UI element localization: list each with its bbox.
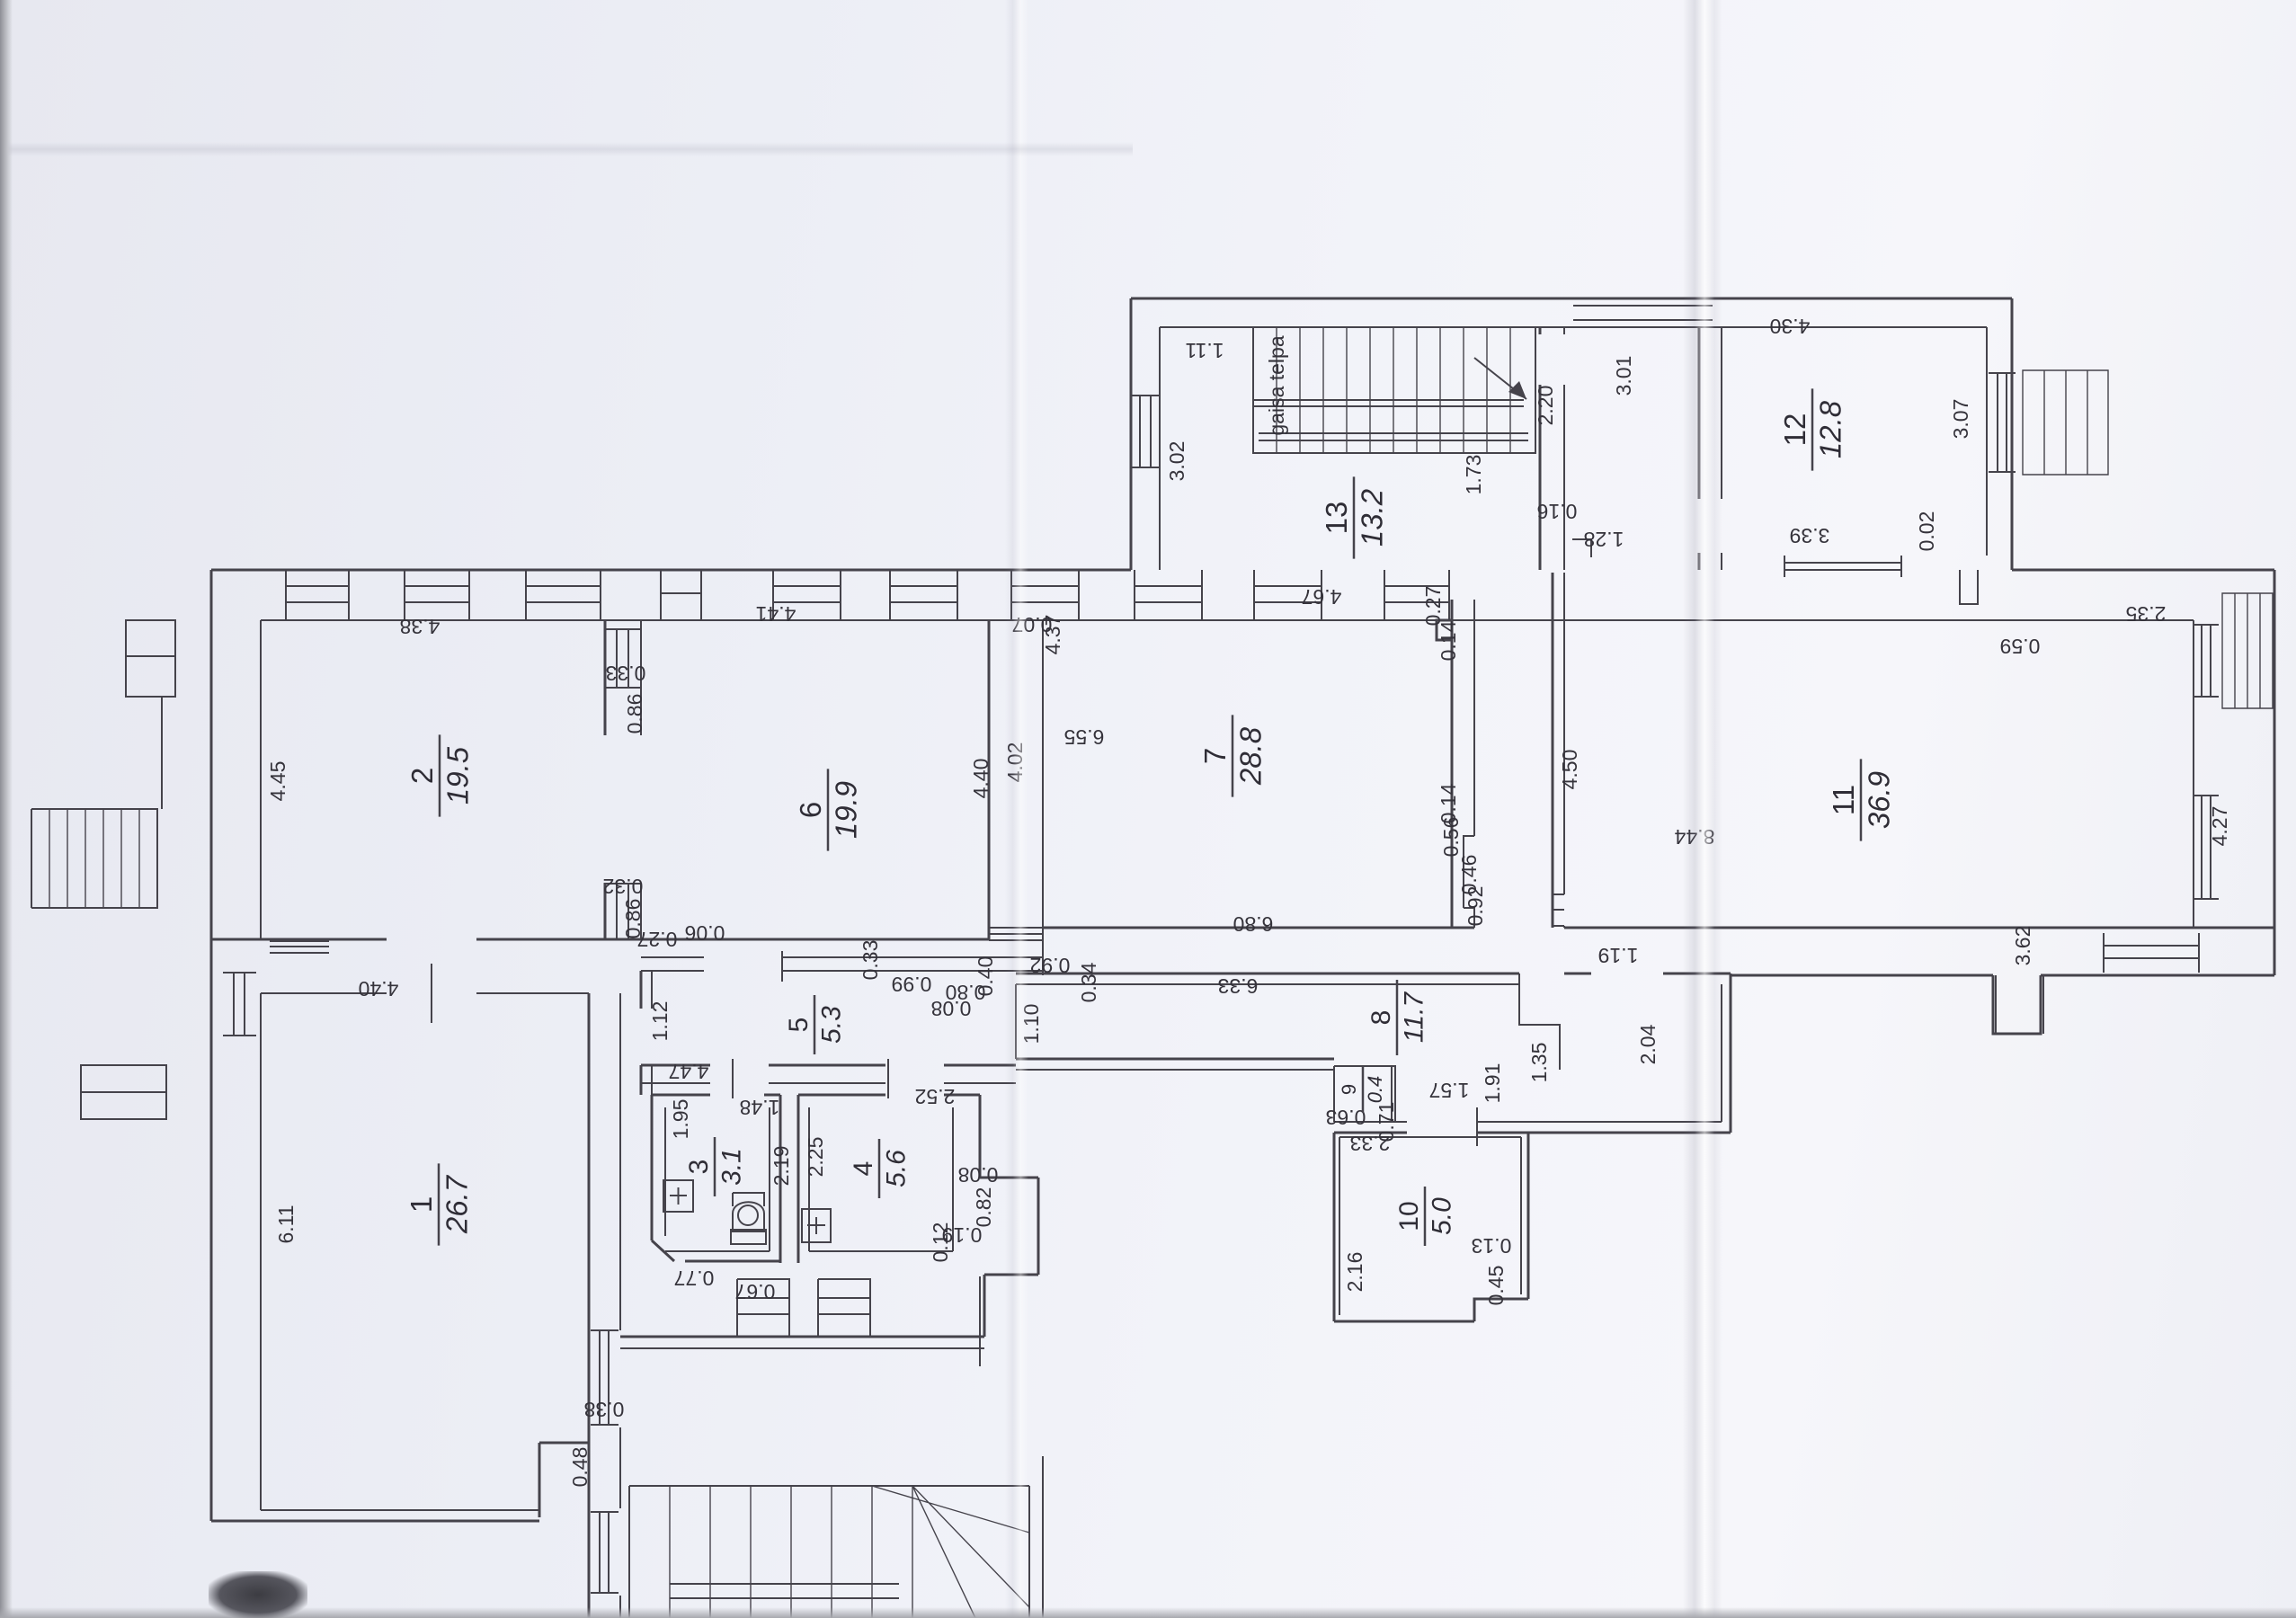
room-number: 10	[1394, 1201, 1424, 1231]
dimension-value: 0.59	[2000, 635, 2041, 658]
dimension-label: 1.12	[648, 1001, 672, 1042]
dimension-value: 0.92	[1030, 954, 1071, 977]
room-area: 5.3	[817, 1006, 847, 1044]
dimension-label: 0.56	[1439, 817, 1463, 858]
dimension-label: 8.44	[1674, 825, 1714, 849]
facade-windows	[286, 556, 1901, 620]
room-area: 19.9	[829, 781, 862, 839]
dimension-value: 0.27	[637, 928, 678, 951]
dimension-label: 0.27	[1421, 586, 1445, 627]
dimension-label: 0.92	[1464, 886, 1487, 927]
dimension-label: 0.92	[1030, 954, 1071, 977]
dimension-label: 4.50	[1558, 750, 1581, 790]
room-area: 13.2	[1355, 489, 1388, 547]
dimension-value: 0.40	[974, 956, 997, 997]
dimension-value: 6.80	[1233, 912, 1274, 936]
dimension-value: 0.77	[674, 1267, 715, 1290]
dimension-value: 4.45	[266, 761, 289, 802]
room-number: 8	[1366, 1010, 1396, 1026]
dimension-value: 3.39	[1790, 524, 1830, 547]
dimension-value: 2.19	[770, 1146, 793, 1187]
dimension-value: 0.33	[859, 940, 882, 981]
exterior-stair-hatch-12	[2023, 370, 2108, 475]
dimension-label: 2.16	[1343, 1252, 1366, 1293]
dimension-value: 4.37	[1041, 615, 1064, 655]
sink-icon-room4	[802, 1209, 831, 1242]
dimension-label: 4.40	[969, 759, 992, 799]
dimension-value: 4.47	[669, 1060, 709, 1083]
dimension-label: 2.19	[770, 1146, 793, 1187]
entrance-steps-left	[31, 620, 175, 1119]
dimension-label: 4.27	[2208, 806, 2231, 847]
room-number: 4	[849, 1161, 878, 1177]
dimension-value: 2.20	[1534, 386, 1557, 426]
dimension-value: 4.27	[2208, 806, 2231, 847]
dimension-label: 0.06	[685, 921, 725, 945]
room-label-7: 728.8	[1198, 715, 1267, 796]
dimension-value: 0.48	[568, 1447, 592, 1488]
dimension-value: 1.35	[1527, 1043, 1551, 1083]
dimension-label: 0.16	[1537, 500, 1578, 523]
dimension-value: 4.30	[1770, 315, 1811, 338]
dimension-value: 4.40	[969, 759, 992, 799]
dimension-value: 3.07	[1949, 399, 1972, 440]
dimension-value: 0.99	[892, 973, 932, 996]
upper-staircase-room13	[1253, 327, 1535, 453]
dimension-label: 0.45	[1484, 1266, 1508, 1306]
room-label-1: 126.7	[405, 1163, 473, 1245]
dimension-value: 8.44	[1674, 825, 1714, 849]
room-number: 3	[684, 1160, 714, 1175]
dimension-value: 0.06	[685, 921, 725, 945]
dimension-label: 4.47	[669, 1060, 709, 1083]
page-edge-shadow	[0, 0, 13, 1618]
dimension-value: 0.27	[1421, 586, 1445, 627]
room-label-2: 219.5	[405, 734, 474, 816]
dimension-value: 1.19	[1598, 944, 1639, 967]
dimension-value: 1.12	[648, 1001, 672, 1042]
dimension-value: 2.25	[804, 1137, 827, 1178]
dimension-value: 0.38	[584, 1398, 625, 1421]
dimension-label: 3.62	[2011, 926, 2034, 966]
room-number: 1	[405, 1196, 438, 1213]
dimension-label: 0.12	[929, 1222, 952, 1263]
dimension-label: 1.10	[1019, 1004, 1043, 1045]
room-number: 2	[405, 768, 439, 784]
dimension-value: 0.92	[1464, 886, 1487, 927]
dimension-value: 2.35	[2126, 602, 2167, 626]
room-number: 5	[784, 1018, 814, 1033]
dimension-value: 1.11	[1185, 339, 1224, 362]
dimension-value: 0.34	[1077, 962, 1100, 1002]
dimension-label: 1.28	[1584, 528, 1624, 551]
dimension-label: 6.55	[1064, 725, 1105, 749]
dimension-value: 6.33	[1218, 974, 1259, 998]
dimension-label: 1.35	[1527, 1043, 1551, 1083]
dimension-value: 3.62	[2011, 926, 2034, 966]
dimension-label: 1.48	[740, 1096, 780, 1119]
dimension-value: 4.67	[1302, 585, 1342, 609]
dimension-label: 4.67	[1302, 585, 1342, 609]
room-area: 28.8	[1233, 726, 1267, 786]
exterior-walls	[211, 298, 2274, 1618]
interior-walls	[211, 573, 2274, 1366]
toilet-icon	[731, 1193, 766, 1244]
dimension-label: 0.67	[735, 1280, 776, 1303]
dimension-label: 2.04	[1636, 1024, 1660, 1064]
dimension-label: 1.57	[1429, 1079, 1470, 1102]
room-number: 7	[1198, 748, 1232, 764]
room-number: 12	[1778, 413, 1811, 447]
room-area: 5.0	[1428, 1197, 1457, 1235]
dimension-value: 4.02	[1003, 742, 1027, 783]
dimension-labels: 1.113.022.201.734.673.010.161.284.303.07…	[266, 315, 2231, 1487]
dimension-value: 4.41	[756, 602, 796, 626]
dimension-label: 0.86	[623, 694, 646, 734]
dimension-value: 2.52	[915, 1085, 956, 1108]
dimension-value: 0.08	[958, 1163, 999, 1187]
dimension-label: 4.38	[400, 615, 441, 638]
main-staircase	[629, 1456, 1043, 1618]
room-area: 0.4	[1364, 1076, 1386, 1104]
dimension-value: 0.67	[735, 1280, 776, 1303]
room-label-11: 1136.9	[1827, 759, 1895, 840]
dimension-value: 4.38	[400, 615, 441, 638]
dimension-value: 2.04	[1636, 1024, 1660, 1064]
room-labels: 126.7219.533.145.655.3619.9728.8811.790.…	[405, 335, 1895, 1246]
dimension-label: 3.02	[1165, 441, 1188, 482]
dimension-value: 0.32	[603, 875, 644, 898]
room-label-12: 1212.8	[1778, 388, 1847, 470]
dimension-value: 1.95	[669, 1099, 692, 1140]
dimension-label: 0.02	[1915, 511, 1938, 552]
dimension-value: 0.13	[1472, 1234, 1512, 1258]
dimension-label: 0.33	[859, 940, 882, 981]
dimension-label: 0.32	[603, 875, 644, 898]
air-space-text: gaisa telpa	[1265, 335, 1288, 435]
dimension-label: 3.01	[1612, 356, 1635, 396]
dimension-label: 0.40	[974, 956, 997, 997]
dimension-value: 6.55	[1064, 725, 1105, 749]
dimension-label: 0.34	[1077, 962, 1100, 1002]
floor-plan-drawing: 1.113.022.201.734.673.010.161.284.303.07…	[0, 0, 2296, 1618]
dimension-value: 3.02	[1165, 441, 1188, 482]
dimension-label: 4.02	[1003, 742, 1027, 783]
dimension-label: 6.33	[1218, 974, 1259, 998]
dimension-value: 4.40	[359, 977, 399, 1000]
dimension-label: 3.07	[1949, 399, 1972, 440]
dimension-value: 0.02	[1915, 511, 1938, 552]
room-area: 11.7	[1400, 991, 1429, 1043]
dimension-label: 0.38	[584, 1398, 625, 1421]
room-label-5: 55.3	[784, 995, 847, 1054]
room-label-6: 619.9	[794, 769, 862, 850]
dimension-label: 0.77	[674, 1267, 715, 1290]
dimension-label: 2.35	[2126, 602, 2167, 626]
dimension-value: 1.10	[1019, 1004, 1043, 1045]
dimension-value: 2.33	[1350, 1132, 1391, 1155]
dimension-label: 1.11	[1185, 339, 1224, 362]
dimension-label: 1.19	[1598, 944, 1639, 967]
dimension-label: 4.45	[266, 761, 289, 802]
dimension-value: 0.33	[606, 662, 646, 685]
dimension-label: 2.33	[1350, 1132, 1391, 1155]
sink-icon-room3	[663, 1180, 693, 1212]
dimension-label: 0.48	[568, 1447, 592, 1488]
room-number: 6	[794, 802, 827, 818]
room-label-8: 811.7	[1366, 980, 1429, 1055]
room-area: 26.7	[440, 1174, 473, 1234]
dimension-label: 2.20	[1534, 386, 1557, 426]
dimension-label: 2.25	[804, 1137, 827, 1178]
air-space-label: gaisa telpa	[1265, 335, 1288, 435]
scanner-shadow-blob	[209, 1571, 307, 1618]
dimension-value: 0.14	[1437, 620, 1460, 661]
scanned-floor-plan-page: 1.113.022.201.734.673.010.161.284.303.07…	[0, 0, 2296, 1618]
dimension-value: 3.01	[1612, 356, 1635, 396]
dimension-value: 1.28	[1584, 528, 1624, 551]
dimension-label: 1.95	[669, 1099, 692, 1140]
dimension-label: 4.40	[359, 977, 399, 1000]
room-label-13: 1313.2	[1320, 476, 1388, 558]
dimension-label: 4.41	[756, 602, 796, 626]
dimension-value: 0.12	[929, 1222, 952, 1263]
dimension-value: 0.86	[623, 694, 646, 734]
dimension-label: 0.99	[892, 973, 932, 996]
dimension-label: 0.59	[2000, 635, 2041, 658]
dimension-value: 1.57	[1429, 1079, 1470, 1102]
room-number: 9	[1338, 1084, 1360, 1095]
page-edge-shadow	[0, 1607, 2296, 1618]
room-number: 11	[1827, 785, 1860, 815]
dimension-value: 0.08	[931, 997, 972, 1020]
dimension-label: 1.91	[1481, 1063, 1504, 1104]
dimension-value: 1.73	[1462, 455, 1485, 495]
dimension-value: 0.63	[1326, 1106, 1366, 1129]
dimension-label: 0.08	[958, 1163, 999, 1187]
dimension-label: 4.30	[1770, 315, 1811, 338]
dimension-value: 6.11	[274, 1205, 298, 1243]
room-area: 36.9	[1862, 771, 1895, 829]
dimension-value: 4.50	[1558, 750, 1581, 790]
dimension-label: 0.82	[972, 1187, 995, 1228]
stair-direction-arrow	[1474, 358, 1526, 399]
room-number: 13	[1320, 502, 1353, 535]
room-area: 19.5	[441, 746, 474, 805]
room-label-10: 105.0	[1394, 1187, 1457, 1246]
dimension-label: 0.33	[606, 662, 646, 685]
dimension-label: 0.63	[1326, 1106, 1366, 1129]
dimension-label: 4.37	[1041, 615, 1064, 655]
dimension-value: 0.56	[1439, 817, 1463, 858]
room-label-4: 45.6	[849, 1139, 912, 1198]
room-area: 12.8	[1813, 400, 1847, 458]
dimension-value: 1.48	[740, 1096, 780, 1119]
window-openings	[223, 306, 2273, 1593]
dimension-label: 6.11	[274, 1205, 298, 1243]
exterior-stair-hatch-11	[2222, 593, 2273, 708]
dimension-value: 1.91	[1481, 1063, 1504, 1104]
dimension-value: 0.16	[1537, 500, 1578, 523]
dimension-value: 2.16	[1343, 1252, 1366, 1293]
room-area: 3.1	[717, 1148, 747, 1186]
room-area: 5.6	[882, 1150, 912, 1187]
dimension-value: 0.45	[1484, 1266, 1508, 1306]
dimension-label: 1.73	[1462, 455, 1485, 495]
dimension-label: 6.80	[1233, 912, 1274, 936]
dimension-label: 0.08	[931, 997, 972, 1020]
dimension-label: 0.27	[637, 928, 678, 951]
dimension-label: 2.52	[915, 1085, 956, 1108]
dimension-label: 0.13	[1472, 1234, 1512, 1258]
dimension-label: 0.14	[1437, 620, 1460, 661]
dimension-label: 3.39	[1790, 524, 1830, 547]
dimension-value: 0.82	[972, 1187, 995, 1228]
